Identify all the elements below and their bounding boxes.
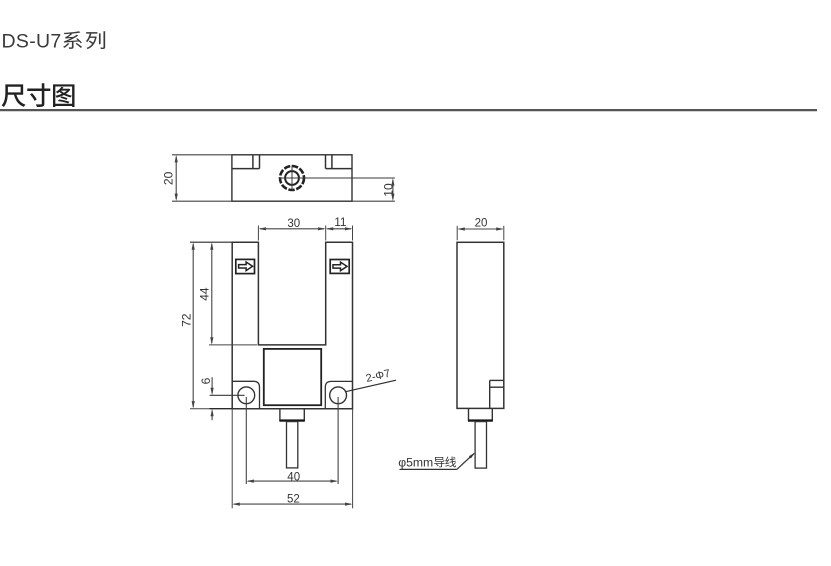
svg-text:52: 52 bbox=[287, 493, 300, 505]
svg-text:44: 44 bbox=[198, 287, 212, 301]
svg-text:72: 72 bbox=[179, 313, 193, 327]
svg-text:φ5mm: φ5mm bbox=[398, 455, 433, 469]
svg-text:20: 20 bbox=[475, 218, 488, 230]
svg-text:20: 20 bbox=[161, 171, 175, 185]
svg-text:10: 10 bbox=[382, 183, 396, 197]
svg-text:DS-U7: DS-U7 bbox=[2, 31, 62, 53]
svg-text:40: 40 bbox=[287, 471, 300, 483]
svg-text:30: 30 bbox=[287, 218, 300, 230]
svg-text:11: 11 bbox=[334, 217, 346, 229]
svg-text:6: 6 bbox=[199, 377, 213, 384]
